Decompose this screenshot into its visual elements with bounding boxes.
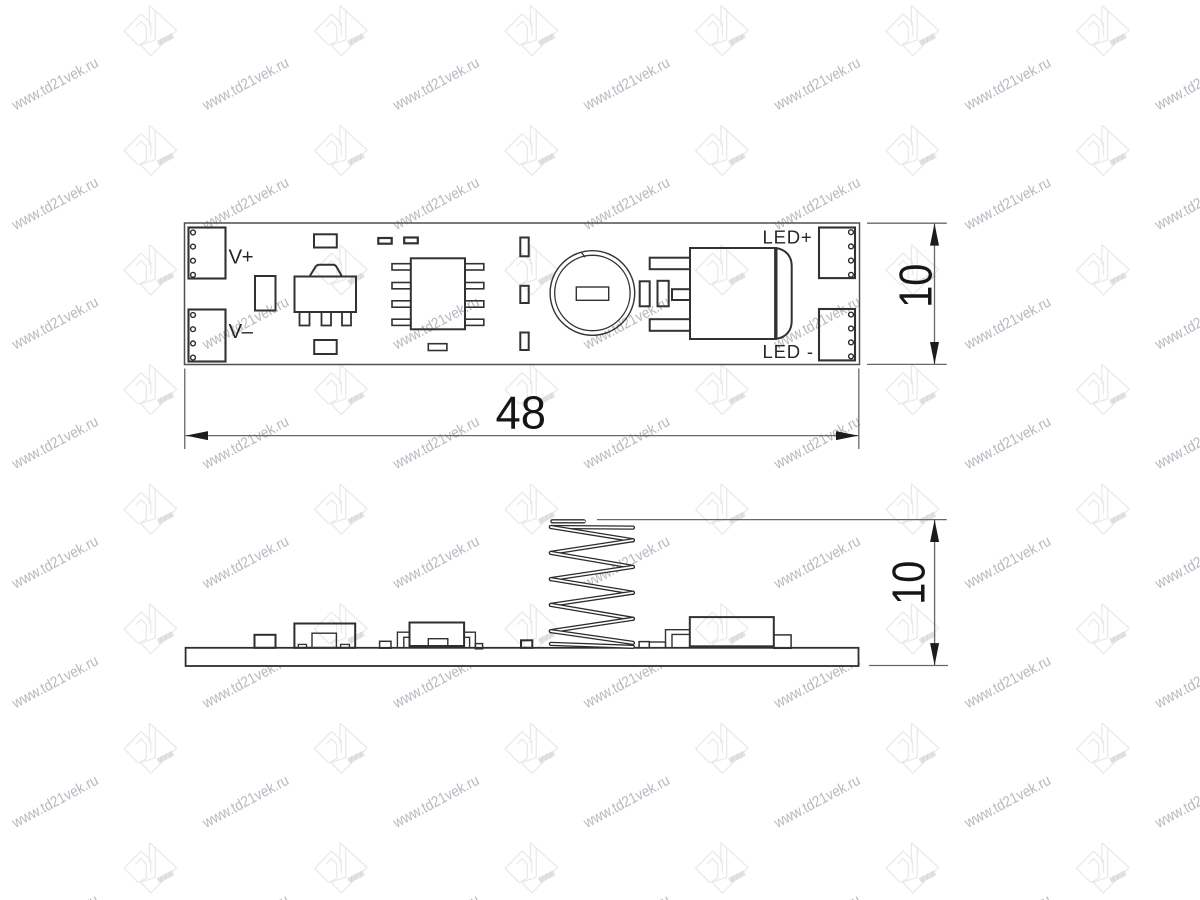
svg-text:LED -: LED - [763, 341, 814, 362]
svg-text:LED+: LED+ [763, 227, 813, 248]
svg-text:10: 10 [890, 264, 942, 308]
svg-text:V+: V+ [229, 246, 254, 269]
svg-text:V–: V– [229, 320, 254, 343]
svg-text:48: 48 [496, 386, 547, 438]
svg-text:10: 10 [883, 561, 935, 605]
